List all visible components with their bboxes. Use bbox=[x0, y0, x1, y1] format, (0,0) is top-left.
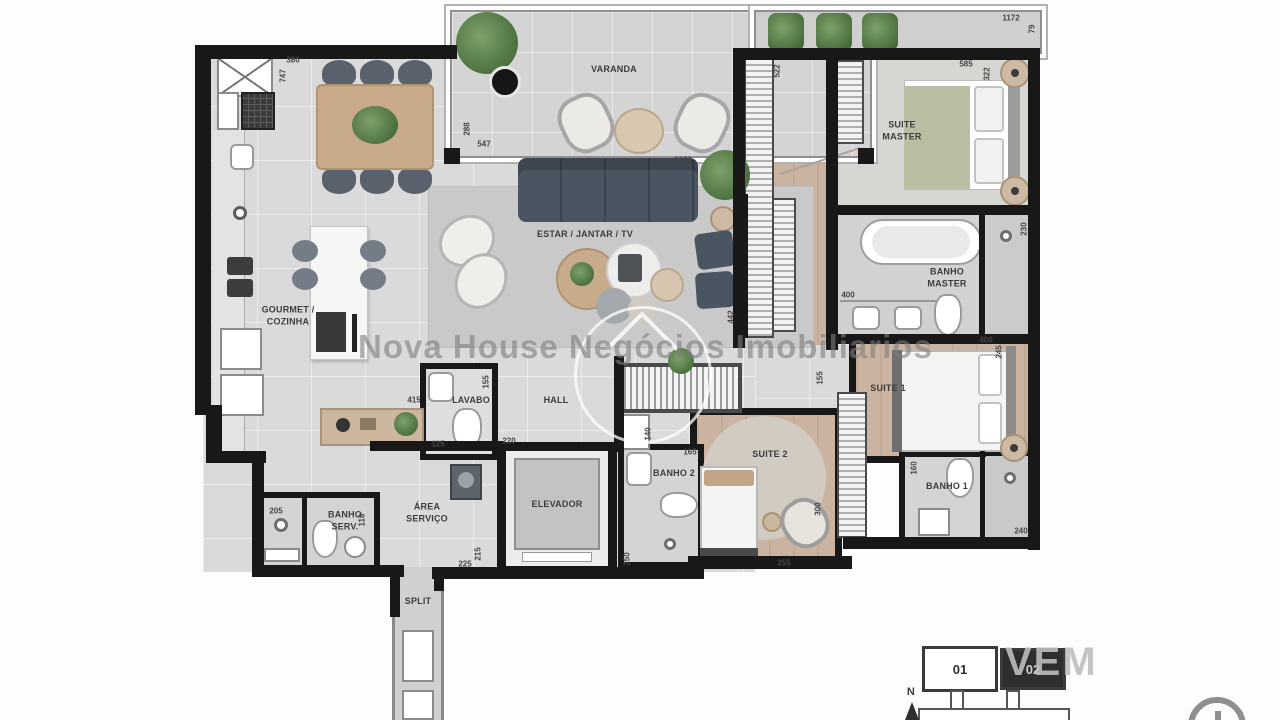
plus-icon bbox=[1215, 711, 1221, 720]
stool bbox=[292, 240, 318, 262]
measurement-label: 220 bbox=[502, 437, 515, 446]
banho-serv-sink bbox=[344, 536, 366, 558]
measurement-label: 300 bbox=[814, 502, 823, 515]
measurement-label: 225 bbox=[458, 560, 471, 569]
measurement-label: 522 bbox=[773, 64, 782, 77]
measurement-label: 747 bbox=[279, 69, 288, 82]
washer-drum bbox=[458, 472, 474, 488]
watermark-overlay-text: VEM bbox=[1005, 640, 1098, 685]
measurement-label: 415 bbox=[407, 396, 420, 405]
measurement-label: 380 bbox=[286, 56, 299, 65]
sideboard-box bbox=[360, 418, 376, 430]
wall bbox=[688, 556, 852, 569]
wall bbox=[733, 48, 1040, 60]
measurement-label: 205 bbox=[269, 507, 282, 516]
room-label-hall: HALL bbox=[544, 395, 569, 407]
duct-hatch-box bbox=[241, 92, 275, 130]
stool bbox=[360, 240, 386, 262]
shower-head bbox=[1000, 230, 1012, 242]
measurement-label: 400 bbox=[979, 336, 992, 345]
measurement-label: 1172 bbox=[1002, 14, 1019, 23]
measurement-label: 215 bbox=[474, 547, 483, 560]
banho-serv-shower-head bbox=[274, 518, 288, 532]
measurement-label: 245 bbox=[995, 345, 1004, 358]
island-bar bbox=[352, 314, 357, 352]
floor-plan-image: VARANDA SUITE MASTER BANHO MASTER GOURME… bbox=[0, 0, 1280, 720]
bathtub-inner bbox=[872, 226, 970, 258]
wall bbox=[980, 451, 985, 545]
dining-chair bbox=[322, 168, 356, 194]
room-label-suite2: SUITE 2 bbox=[752, 449, 787, 461]
fridge bbox=[220, 374, 264, 416]
wall bbox=[195, 45, 211, 415]
master-closet-wardrobe-right bbox=[836, 60, 864, 144]
keyplan-unit-01: 01 bbox=[922, 646, 998, 692]
room-label-suite-master: SUITE MASTER bbox=[872, 119, 932, 142]
measurement-label: 155 bbox=[482, 375, 491, 388]
varanda-black-table bbox=[489, 66, 521, 98]
room-label-estar: ESTAR / JANTAR / TV bbox=[537, 229, 633, 241]
dining-chair bbox=[360, 60, 394, 86]
coffee-table-plant bbox=[570, 262, 594, 286]
dining-chair bbox=[360, 168, 394, 194]
sofa bbox=[518, 158, 698, 222]
measurement-label: 116 bbox=[358, 514, 367, 527]
room-label-varanda: VARANDA bbox=[591, 64, 637, 76]
wall bbox=[979, 212, 985, 342]
room-label-area-servico: ÁREA SERVIÇO bbox=[397, 501, 457, 524]
coffee-table-decor bbox=[618, 254, 642, 282]
measurement-label: 322 bbox=[983, 67, 992, 80]
measurement-label: 547 bbox=[477, 140, 490, 149]
terrace-planter-2 bbox=[816, 13, 852, 51]
master-closet-wardrobe-left bbox=[744, 58, 774, 338]
measurement-label: 288 bbox=[463, 122, 472, 135]
dining-chair bbox=[398, 60, 432, 86]
measurement-label: 1070 bbox=[674, 156, 692, 165]
room-label-gourmet: GOURMET / COZINHA bbox=[250, 304, 326, 327]
keyplan-north-label: N bbox=[907, 685, 915, 699]
varanda-round-table bbox=[614, 108, 664, 154]
kitchen-faucet bbox=[233, 206, 247, 220]
wall bbox=[390, 567, 400, 617]
suite-1-lamp-dot bbox=[1010, 444, 1018, 452]
room-label-suite1: SUITE 1 bbox=[870, 383, 905, 395]
kitchen-sink bbox=[230, 144, 254, 170]
room-label-split: SPLIT bbox=[405, 596, 432, 608]
master-bed-pillow bbox=[974, 138, 1004, 184]
zoom-in-button[interactable] bbox=[1188, 697, 1246, 720]
coffee-table-beige bbox=[650, 268, 684, 302]
wall bbox=[434, 567, 444, 591]
wall bbox=[858, 148, 874, 164]
vanity-sink bbox=[852, 306, 880, 330]
master-toilet bbox=[934, 294, 962, 336]
wall bbox=[1028, 50, 1040, 550]
armchair bbox=[694, 230, 737, 271]
nightstand-lamp bbox=[1011, 69, 1019, 77]
suite-2-bed-pillow bbox=[704, 470, 754, 486]
wall bbox=[826, 55, 838, 213]
measurement-label: 155 bbox=[816, 371, 825, 384]
stool bbox=[292, 268, 318, 290]
measurement-label: 165 bbox=[683, 448, 696, 457]
dining-chair bbox=[398, 168, 432, 194]
oven bbox=[220, 328, 262, 370]
banho-serv-shower-tray bbox=[264, 548, 300, 562]
varanda-tree bbox=[456, 12, 518, 74]
cooktop-burner bbox=[227, 279, 253, 297]
wall bbox=[826, 205, 1040, 215]
measurement-label: 442 bbox=[727, 310, 736, 323]
cooktop-burner bbox=[227, 257, 253, 275]
room-label-lavabo: LAVABO bbox=[452, 395, 490, 407]
keyplan-lower-body bbox=[918, 708, 1070, 720]
measurement-label: 160 bbox=[910, 461, 919, 474]
banho1-cabinet bbox=[918, 508, 950, 536]
armchair bbox=[695, 271, 735, 310]
room-label-banho-master: BANHO MASTER bbox=[915, 266, 979, 289]
dining-chair bbox=[322, 60, 356, 86]
shaft-box bbox=[217, 57, 273, 97]
dining-centerpiece-plant bbox=[352, 106, 398, 144]
north-arrow-icon bbox=[905, 702, 919, 720]
wall bbox=[302, 497, 307, 567]
wall bbox=[195, 45, 457, 59]
measurement-label: 79 bbox=[1028, 25, 1037, 34]
measurement-label: 240 bbox=[1014, 527, 1027, 536]
vanity-sink bbox=[894, 306, 922, 330]
split-ac-unit bbox=[402, 630, 434, 682]
banho2-sink bbox=[626, 452, 652, 486]
sideboard-vase bbox=[336, 418, 350, 432]
measurement-label: 125 bbox=[431, 440, 444, 449]
suite-1-pillow bbox=[978, 354, 1002, 396]
wall bbox=[444, 148, 460, 164]
master-bed-pillow bbox=[974, 86, 1004, 132]
terrace-planter-3 bbox=[862, 13, 898, 51]
wall bbox=[432, 567, 704, 579]
measurement-label: 585 bbox=[959, 60, 972, 69]
shaft-box-small bbox=[217, 92, 239, 130]
room-label-banho2: BANHO 2 bbox=[653, 468, 695, 480]
measurement-label: 255 bbox=[777, 559, 790, 568]
banho2-toilet bbox=[660, 492, 698, 518]
watermark-brand-text: Nova House Negócios Imobiliarios bbox=[358, 328, 903, 366]
measurement-label: 230 bbox=[1020, 222, 1029, 235]
wall bbox=[252, 565, 404, 577]
suite-1-pillow bbox=[978, 402, 1002, 444]
terrace-planter-1 bbox=[768, 13, 804, 51]
lavabo-sink bbox=[428, 372, 454, 402]
wall bbox=[843, 537, 1040, 549]
wall bbox=[252, 455, 264, 577]
measurement-label: 250 bbox=[623, 552, 632, 565]
elevator-door bbox=[522, 552, 592, 562]
room-label-elevador: ELEVADOR bbox=[532, 499, 583, 511]
banho2-shower-head bbox=[664, 538, 676, 550]
suite-1-wardrobe bbox=[837, 392, 867, 538]
measurement-label: 400 bbox=[841, 291, 854, 300]
nightstand-lamp bbox=[1011, 187, 1019, 195]
wall bbox=[740, 194, 748, 338]
stool bbox=[360, 268, 386, 290]
split-ac-unit bbox=[402, 690, 434, 720]
room-label-banho1: BANHO 1 bbox=[926, 481, 968, 493]
banho1-shower-head bbox=[1004, 472, 1016, 484]
sideboard-plant bbox=[394, 412, 418, 436]
